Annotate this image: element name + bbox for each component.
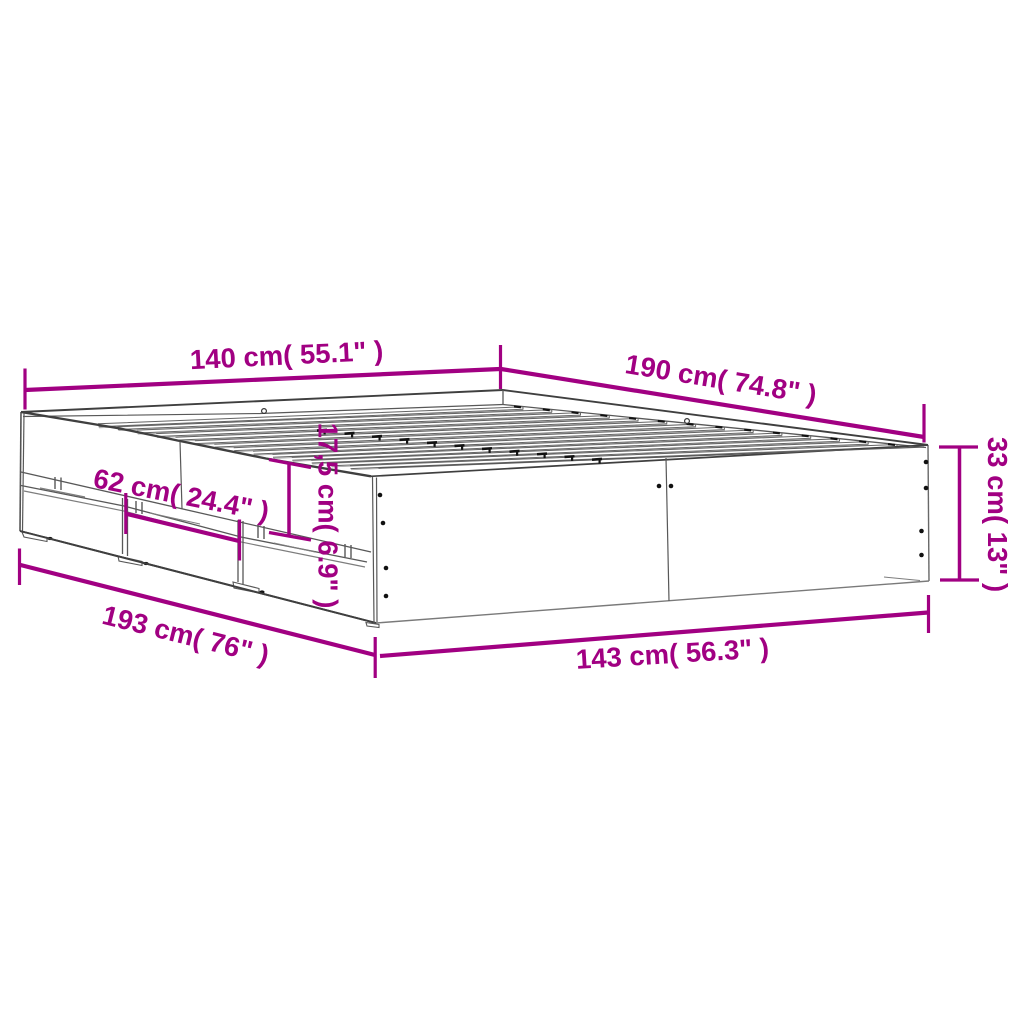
svg-text:140 cm( 55.1" ): 140 cm( 55.1" ) <box>189 335 384 375</box>
svg-text:193 cm( 76" ): 193 cm( 76" ) <box>99 599 272 670</box>
svg-text:190 cm( 74.8" ): 190 cm( 74.8" ) <box>623 348 819 410</box>
svg-text:33 cm( 13" ): 33 cm( 13" ) <box>982 437 1013 592</box>
svg-text:17,5 cm( 6.9" ): 17,5 cm( 6.9" ) <box>313 423 344 609</box>
